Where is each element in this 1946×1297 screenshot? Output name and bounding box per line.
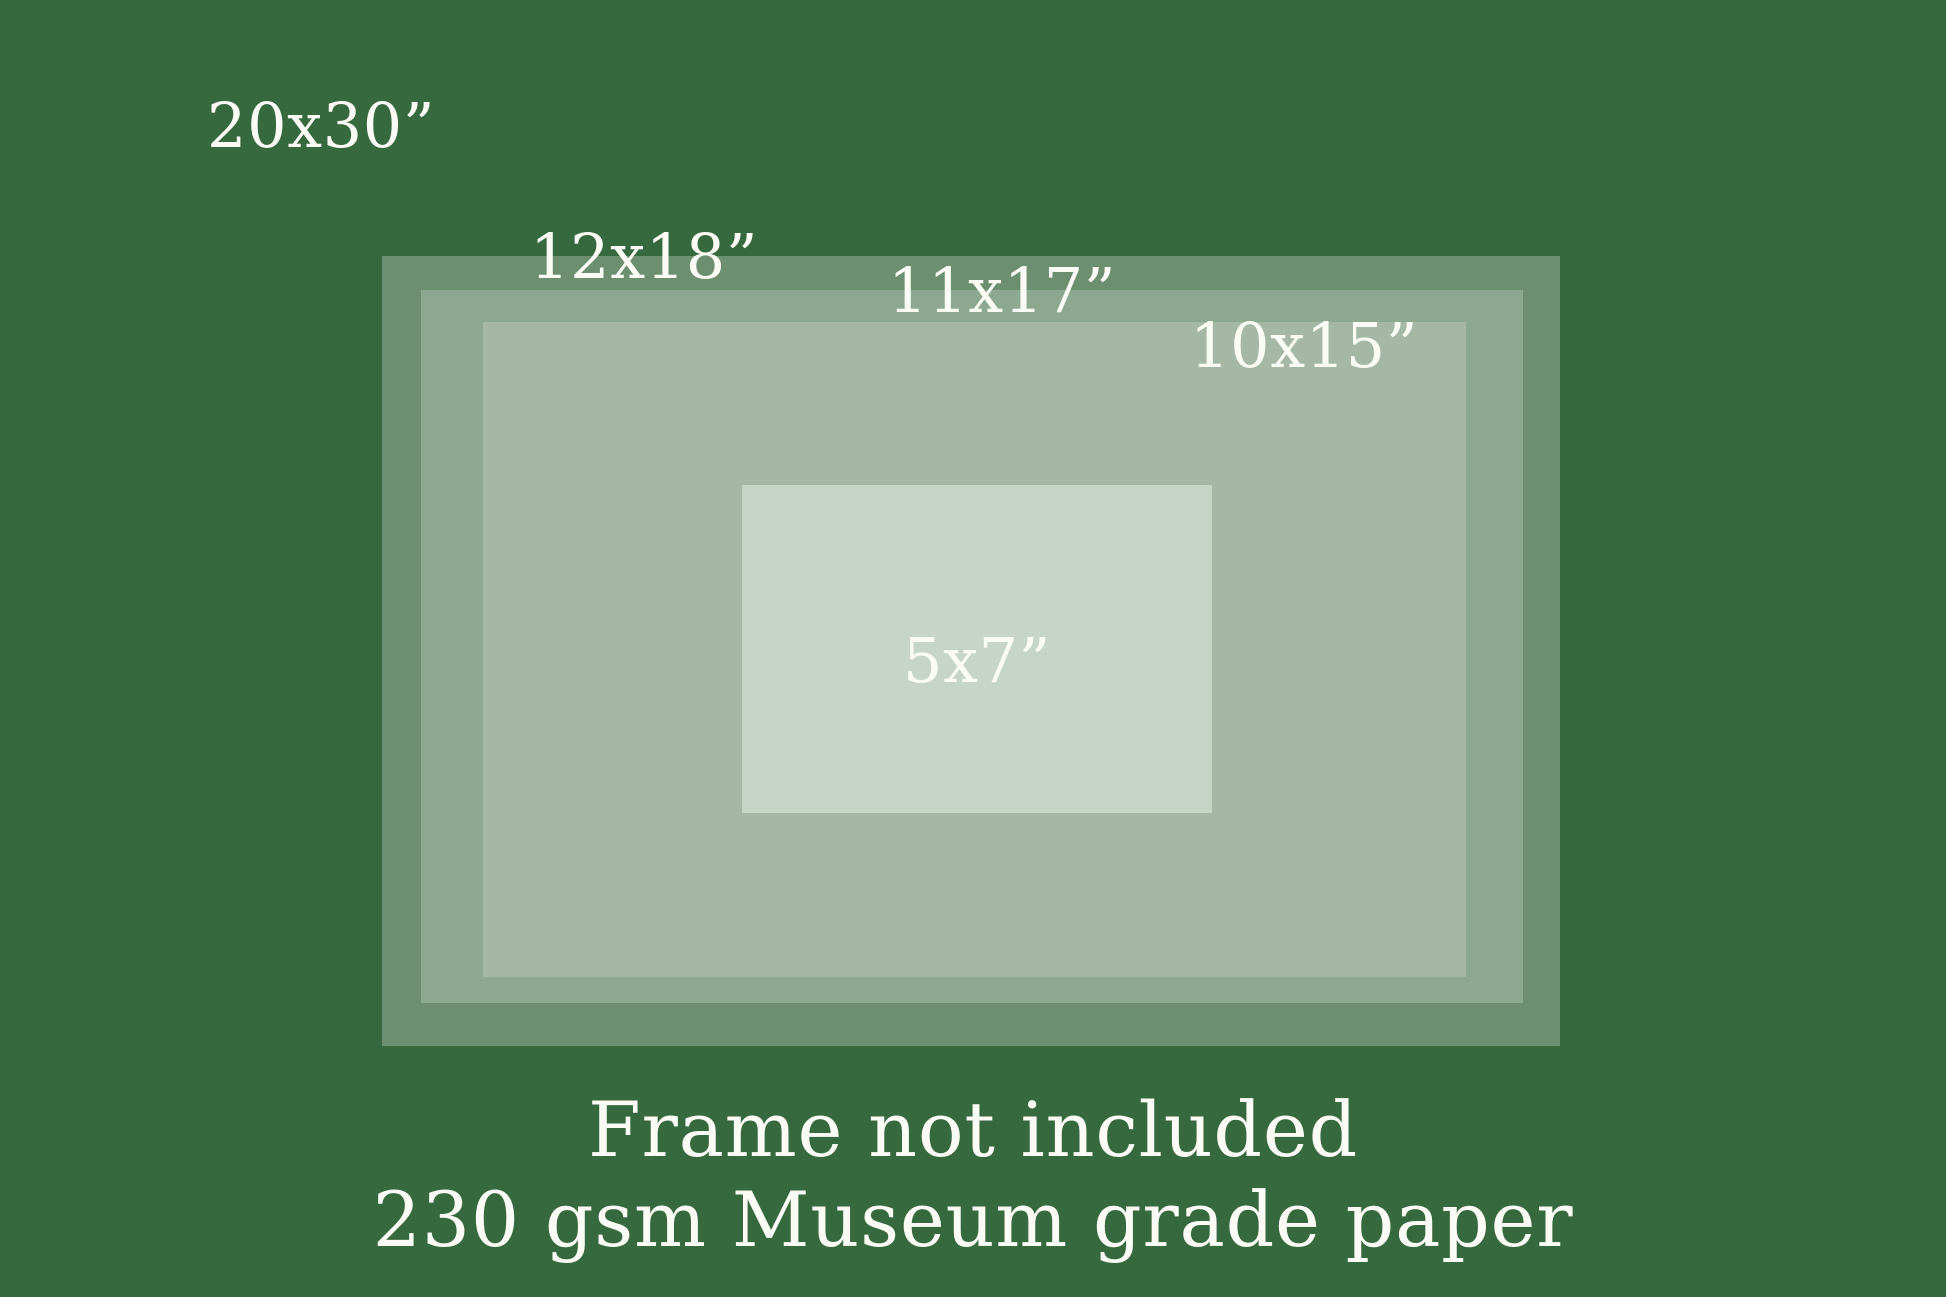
- footer-text: Frame not included 230 gsm Museum grade …: [0, 1085, 1946, 1264]
- size-label-5x7: 5x7”: [742, 630, 1212, 692]
- size-label-12x18: 12x18”: [530, 226, 758, 288]
- frame-note: Frame not included: [0, 1085, 1946, 1175]
- size-label-20x30: 20x30”: [207, 95, 435, 157]
- size-label-10x15: 10x15”: [1190, 315, 1418, 377]
- print-size-guide: 20x30” 12x18” 11x17” 10x15” 5x7” Frame n…: [0, 0, 1946, 1297]
- size-label-11x17: 11x17”: [888, 260, 1116, 322]
- paper-spec: 230 gsm Museum grade paper: [0, 1175, 1946, 1265]
